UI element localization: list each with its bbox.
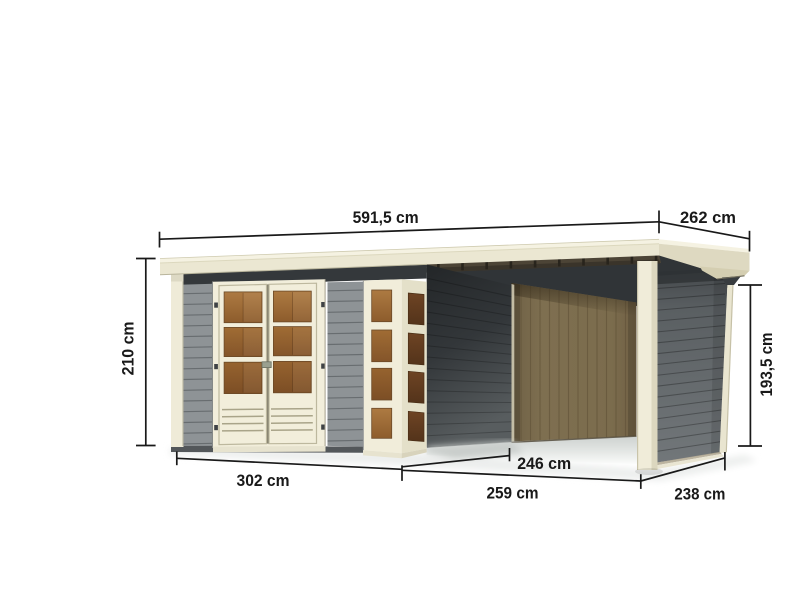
svg-text:591,5 cm: 591,5 cm — [353, 208, 419, 227]
svg-text:193,5 cm: 193,5 cm — [757, 333, 776, 397]
svg-text:259 cm: 259 cm — [487, 483, 539, 502]
svg-text:302 cm: 302 cm — [237, 471, 290, 490]
svg-text:262 cm: 262 cm — [680, 208, 736, 227]
svg-text:246 cm: 246 cm — [517, 454, 571, 473]
svg-text:238 cm: 238 cm — [674, 484, 725, 503]
svg-text:210 cm: 210 cm — [119, 321, 138, 375]
